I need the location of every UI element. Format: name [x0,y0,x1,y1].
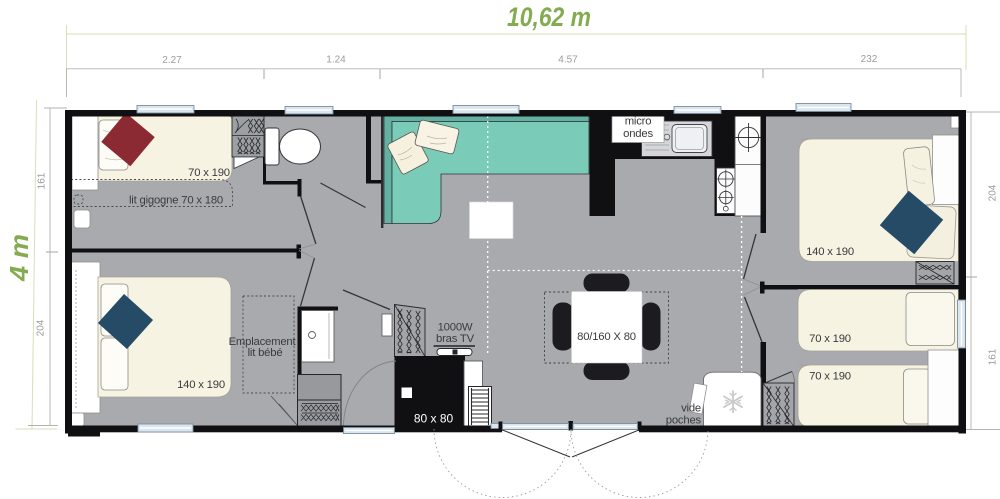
svg-text:80/160 X 80: 80/160 X 80 [577,331,636,343]
svg-text:70 x 190: 70 x 190 [188,167,230,179]
svg-text:4 m: 4 m [4,234,34,282]
svg-text:161: 161 [37,172,48,189]
svg-text:70 x 190: 70 x 190 [809,333,851,345]
svg-text:140 x 190: 140 x 190 [806,246,854,258]
svg-text:161: 161 [988,348,999,365]
svg-text:80 x 80: 80 x 80 [414,412,454,426]
svg-text:2.27: 2.27 [162,55,182,66]
svg-text:4.57: 4.57 [558,55,578,66]
svg-text:bras TV: bras TV [436,333,475,345]
svg-text:70 x 190: 70 x 190 [809,371,851,383]
svg-text:lit bébé: lit bébé [248,347,283,359]
svg-text:204: 204 [988,184,999,201]
svg-text:lit gigogne 70 x 180: lit gigogne 70 x 180 [129,195,223,207]
svg-text:poches: poches [666,415,702,427]
svg-text:vide: vide [681,403,701,415]
svg-text:140 x 190: 140 x 190 [177,379,225,391]
svg-text:1000W: 1000W [438,322,473,334]
svg-text:micro: micro [625,116,652,128]
svg-text:1.24: 1.24 [326,55,346,66]
svg-text:204: 204 [36,319,47,336]
svg-text:232: 232 [861,54,878,65]
svg-text:10,62 m: 10,62 m [507,2,591,32]
svg-text:ondes: ondes [623,128,653,140]
